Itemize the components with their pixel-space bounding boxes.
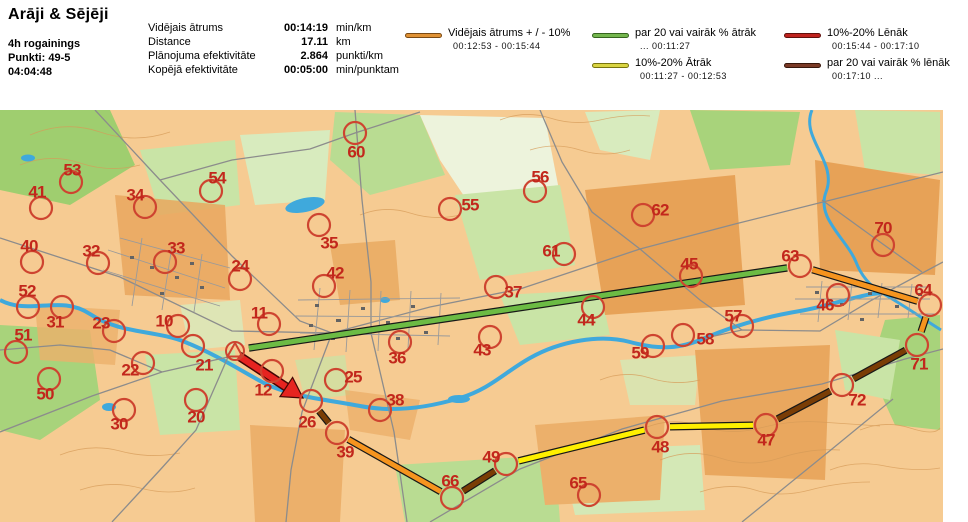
points-summary: Punkti: 49-5	[8, 51, 80, 65]
stat-value: 00:05:00	[276, 64, 328, 76]
control-number-23: 23	[92, 314, 110, 333]
control-number-45: 45	[680, 255, 698, 274]
stat-unit: km	[336, 36, 351, 48]
control-number-10: 10	[155, 312, 173, 331]
stat-label: Distance	[148, 36, 276, 48]
control-number-20: 20	[187, 408, 205, 427]
stat-value: 2.864	[276, 50, 328, 62]
control-number-62: 62	[651, 201, 669, 220]
legend-swatch-orange	[405, 33, 442, 38]
control-number-22: 22	[121, 361, 139, 380]
control-number-58: 58	[696, 330, 714, 349]
stat-label: Vidējais ātrums	[148, 22, 276, 34]
stats-table: Vidējais ātrums 00:14:19 min/km Distance…	[148, 22, 399, 78]
control-number-39: 39	[336, 443, 354, 462]
report-page: Arāji & Sējēji 4h rogainings Punkti: 49-…	[0, 0, 968, 522]
control-number-38: 38	[386, 391, 404, 410]
legend-label: 10%-20% Ātrāk	[635, 57, 711, 69]
control-number-34: 34	[126, 186, 145, 205]
legend-swatch-green	[592, 33, 629, 38]
stat-value: 17.11	[276, 36, 328, 48]
control-number-36: 36	[388, 349, 406, 368]
control-number-25: 25	[344, 368, 362, 387]
control-number-61: 61	[542, 242, 560, 261]
control-number-30: 30	[110, 415, 128, 434]
legend-range: 00:11:27 - 00:12:53	[640, 71, 727, 81]
legend-label: par 20 vai vairāk % lēnāk	[827, 57, 950, 69]
control-number-37: 37	[504, 283, 522, 302]
stat-row: Distance 17.11 km	[148, 36, 399, 50]
control-number-26: 26	[298, 413, 316, 432]
legend-label: par 20 vai vairāk % ātrāk	[635, 27, 756, 39]
stat-label: Kopējā efektivitāte	[148, 64, 276, 76]
legend-label: 10%-20% Lēnāk	[827, 27, 908, 39]
control-number-35: 35	[320, 234, 338, 253]
route-map: 1011122021222324252630313233343536373839…	[0, 110, 943, 522]
control-number-41: 41	[28, 183, 46, 202]
control-number-57: 57	[724, 307, 742, 326]
control-number-64: 64	[914, 281, 933, 300]
legend-swatch-brown	[784, 63, 821, 68]
control-number-51: 51	[14, 326, 32, 345]
control-number-40: 40	[20, 237, 38, 256]
control-number-32: 32	[82, 242, 100, 261]
control-number-70: 70	[874, 219, 892, 238]
control-number-63: 63	[781, 247, 799, 266]
control-number-55: 55	[461, 196, 479, 215]
legend-swatch-red	[784, 33, 821, 38]
legend-range: 00:15:44 - 00:17:10	[832, 41, 920, 51]
stat-row: Plānojuma efektivitāte 2.864 punkti/km	[148, 50, 399, 64]
control-number-47: 47	[757, 431, 775, 450]
control-number-65: 65	[569, 474, 587, 493]
team-info: 4h rogainings Punkti: 49-5 04:04:48	[8, 37, 80, 79]
page-title: Arāji & Sējēji	[8, 6, 109, 24]
legend-swatch-yellow	[592, 63, 629, 68]
total-time: 04:04:48	[8, 65, 80, 79]
control-number-53: 53	[63, 161, 81, 180]
stat-unit: punkti/km	[336, 50, 383, 62]
legend-range: ... 00:11:27	[640, 41, 690, 51]
control-number-31: 31	[46, 313, 64, 332]
control-number-48: 48	[651, 438, 669, 457]
legend-range: 00:17:10 ...	[832, 71, 883, 81]
control-number-71: 71	[910, 355, 928, 374]
control-number-43: 43	[473, 341, 491, 360]
control-number-54: 54	[208, 169, 227, 188]
control-number-52: 52	[18, 282, 36, 301]
control-number-12: 12	[254, 381, 272, 400]
control-number-33: 33	[167, 239, 185, 258]
control-number-11: 11	[251, 304, 268, 323]
control-number-42: 42	[326, 264, 344, 283]
stat-row: Vidējais ātrums 00:14:19 min/km	[148, 22, 399, 36]
control-number-46: 46	[816, 296, 834, 315]
route-segment-yellow	[670, 425, 753, 427]
stat-row: Kopējā efektivitāte 00:05:00 min/punktam	[148, 64, 399, 78]
control-number-72: 72	[848, 391, 866, 410]
control-number-44: 44	[577, 311, 596, 330]
control-number-49: 49	[482, 448, 500, 467]
control-number-66: 66	[441, 472, 459, 491]
stat-label: Plānojuma efektivitāte	[148, 50, 276, 62]
stat-value: 00:14:19	[276, 22, 328, 34]
legend-label: Vidējais ātrums + / - 10%	[448, 27, 570, 39]
stat-unit: min/punktam	[336, 64, 399, 76]
control-number-21: 21	[195, 356, 213, 375]
control-number-24: 24	[231, 257, 250, 276]
control-number-60: 60	[347, 143, 365, 162]
event-name: 4h rogainings	[8, 37, 80, 51]
control-number-56: 56	[531, 168, 549, 187]
control-number-59: 59	[631, 344, 649, 363]
stat-unit: min/km	[336, 22, 371, 34]
control-number-50: 50	[36, 385, 54, 404]
legend-range: 00:12:53 - 00:15:44	[453, 41, 541, 51]
